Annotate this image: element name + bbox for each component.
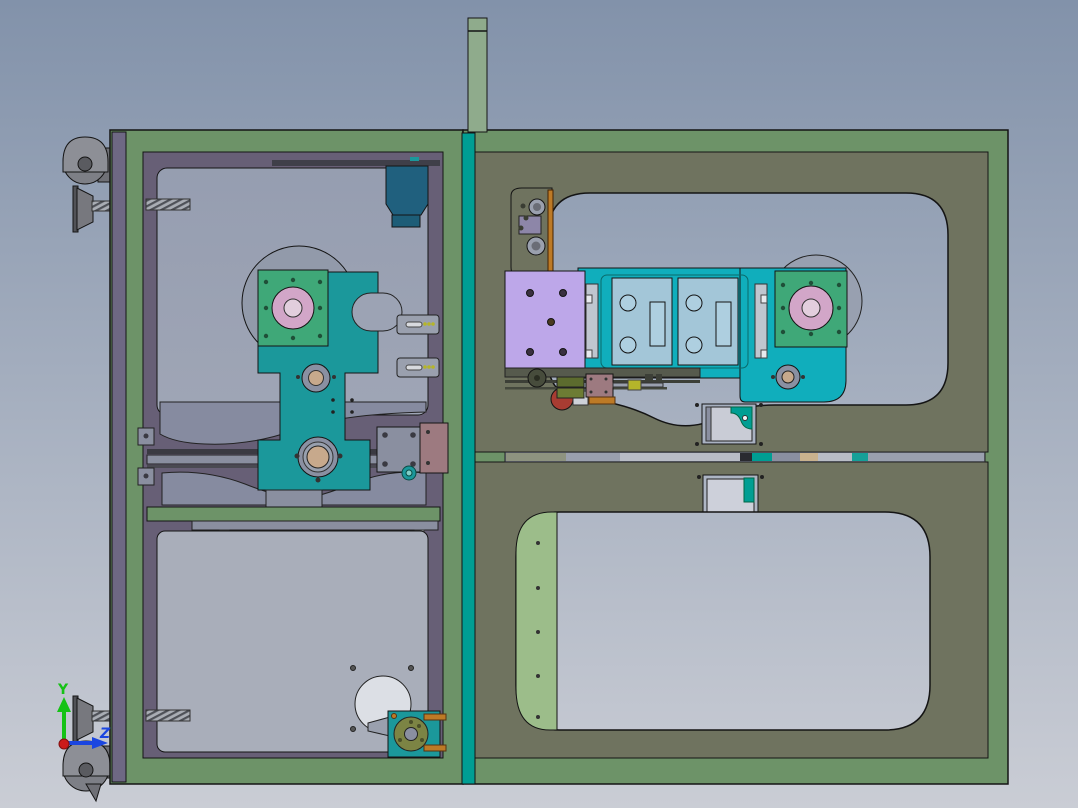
threaded-rod-bottom (146, 710, 190, 721)
purple-clip (519, 216, 541, 234)
violet-edge-strip (112, 132, 126, 782)
green-bearing-plate-left[interactable] (258, 270, 328, 346)
y-axis-label: Y (57, 682, 69, 698)
lavender-plate[interactable] (505, 271, 585, 371)
teal-corner-plate[interactable] (388, 711, 446, 757)
top-post[interactable] (468, 18, 487, 132)
lower-panel-cutout (516, 512, 930, 730)
mauve-bracket (420, 423, 448, 473)
model-view: Y Z (0, 0, 1078, 808)
slide-tab (266, 490, 322, 508)
z-axis-label: Z (99, 726, 111, 742)
teal-divider-strip (462, 133, 475, 784)
olive-tab (511, 188, 553, 277)
lower-gray-panel[interactable] (157, 531, 446, 757)
arch-slot (352, 293, 402, 331)
blue-plate-2[interactable] (678, 278, 738, 365)
rail-clamp (410, 157, 419, 161)
orange-strip (548, 190, 553, 276)
divider-strip (505, 452, 985, 462)
slot-tab-upper (397, 315, 439, 334)
threaded-rod-top (146, 199, 190, 210)
motor-mount-plate[interactable] (377, 423, 448, 480)
origin-dot (59, 739, 69, 749)
cad-viewport: Y Z (0, 0, 1078, 808)
light-green-strip (516, 512, 557, 730)
slot-tab-lower (397, 358, 439, 377)
opening-upper (695, 403, 763, 446)
blue-plate-1[interactable] (612, 278, 672, 365)
green-bearing-plate-right[interactable] (775, 271, 847, 347)
